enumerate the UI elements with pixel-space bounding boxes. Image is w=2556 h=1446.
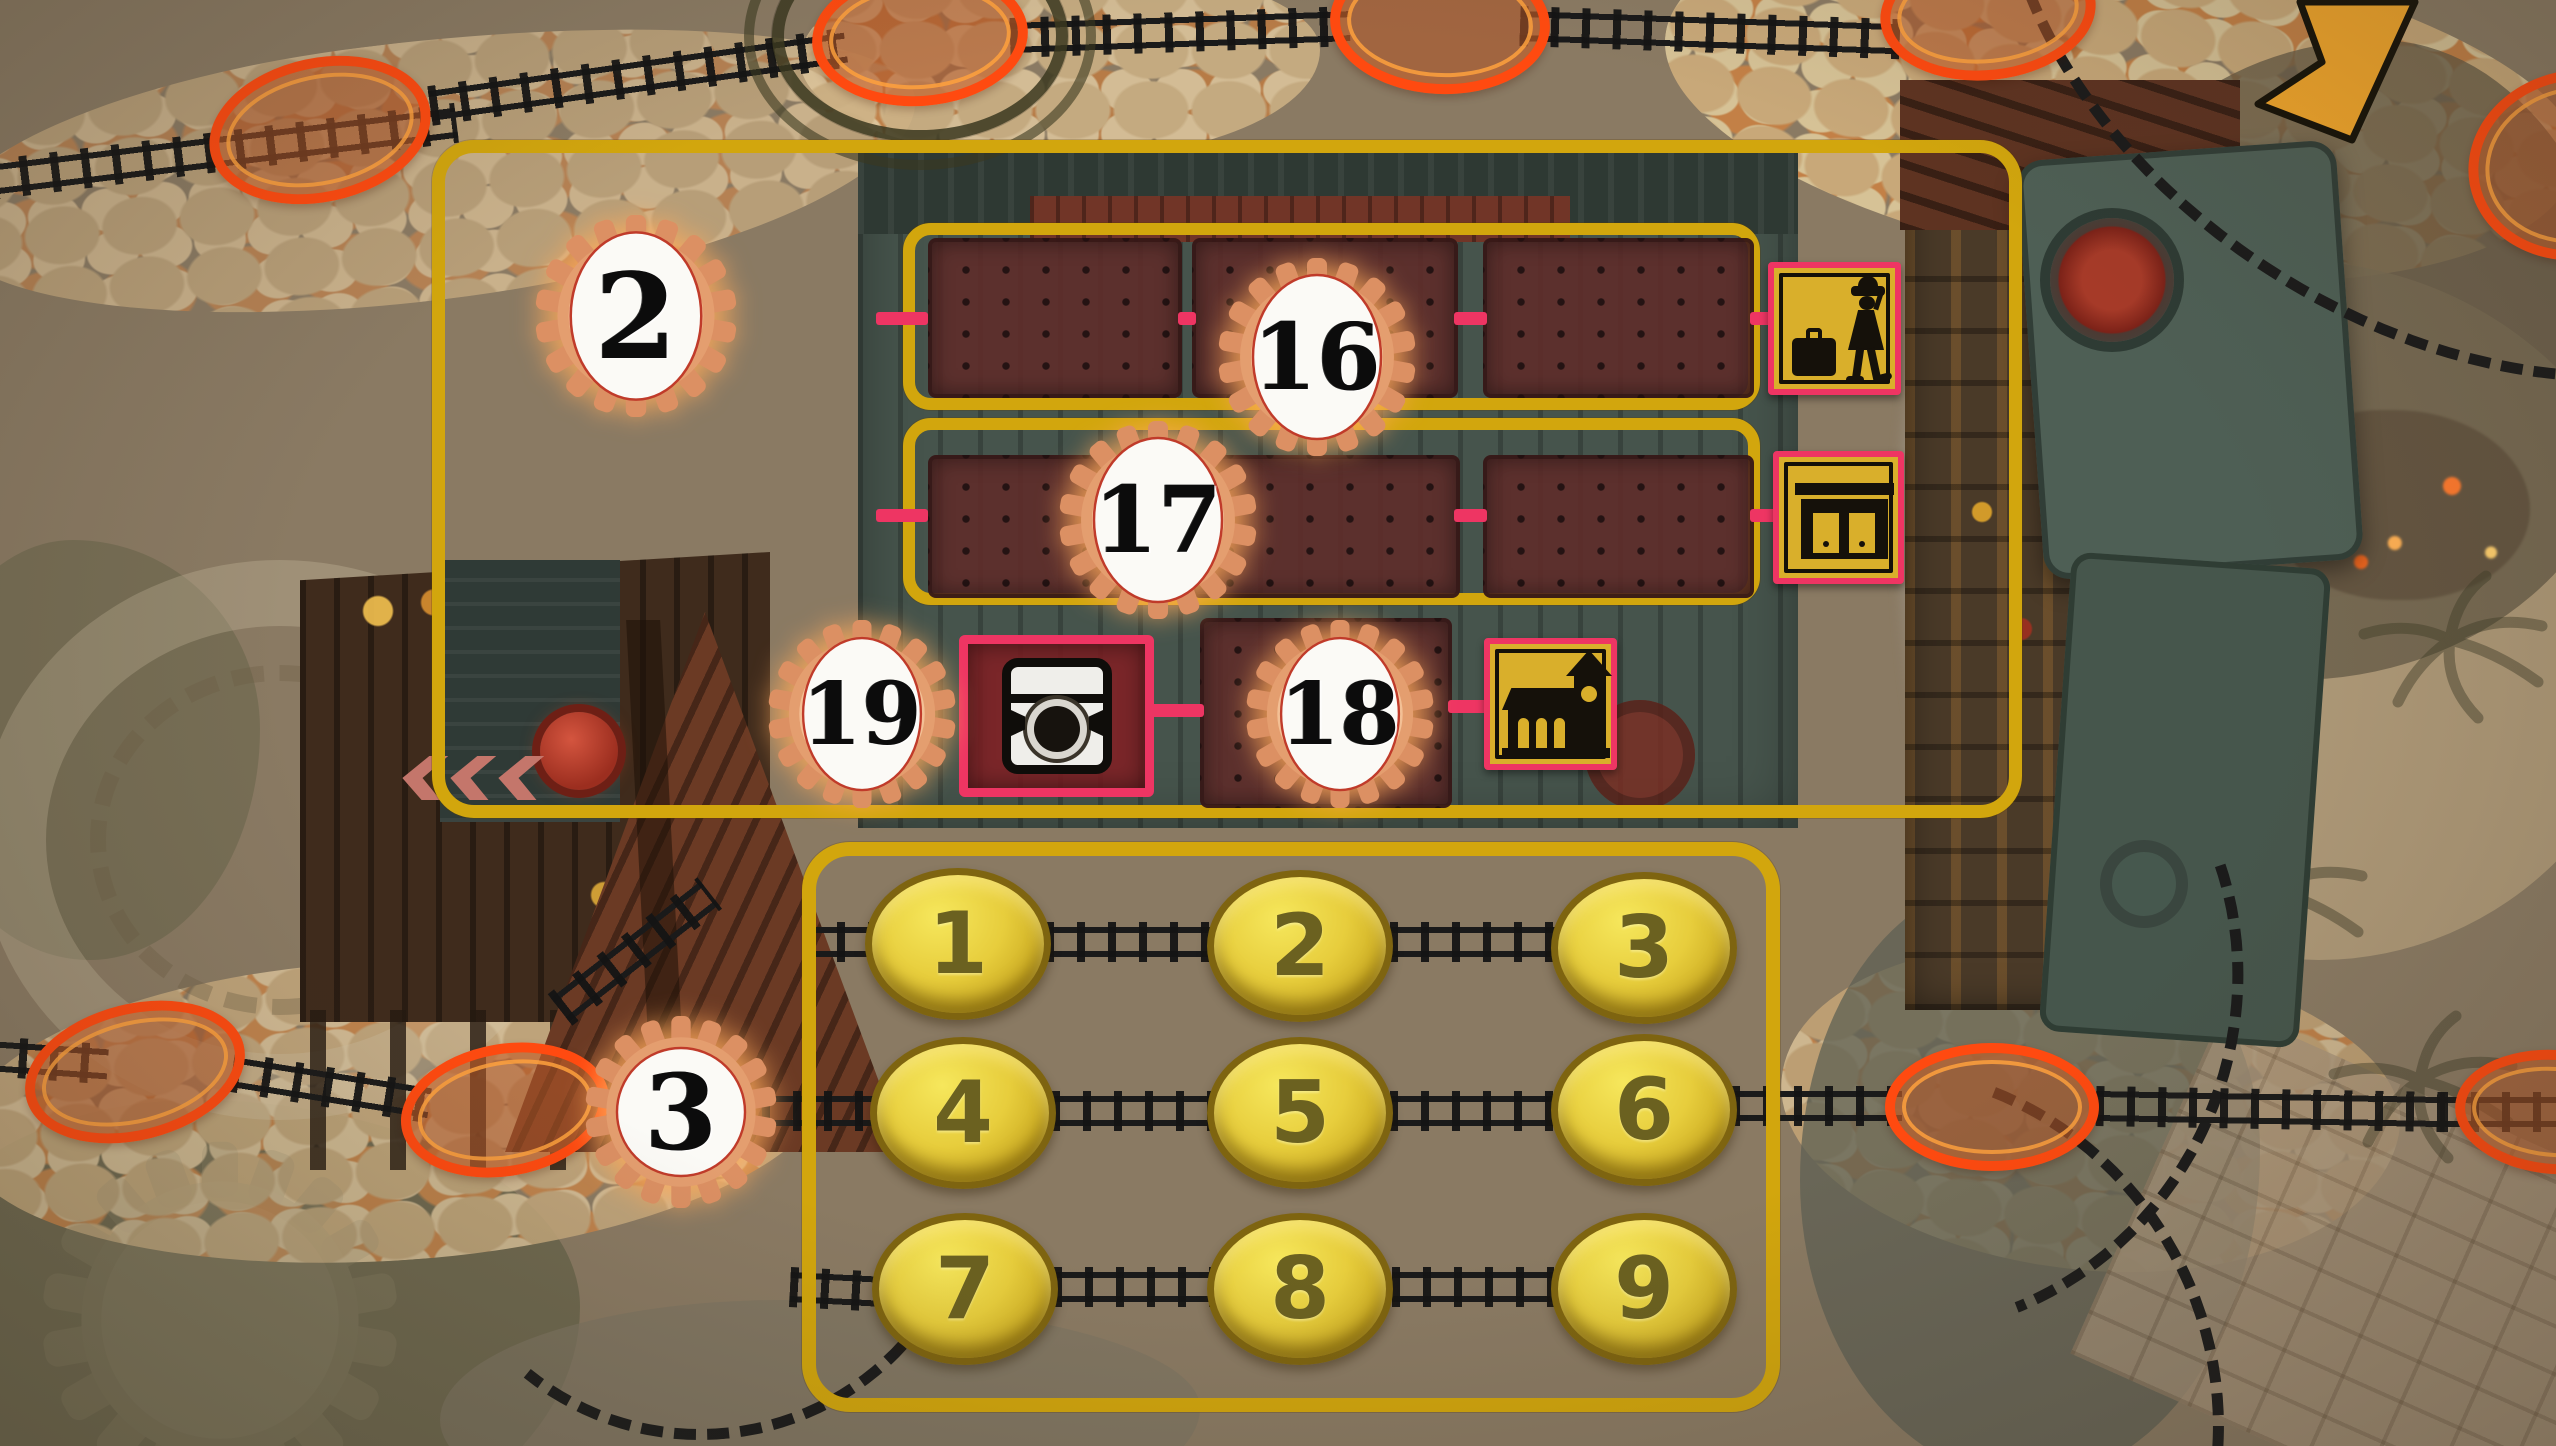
machine-glyph-wheel xyxy=(1034,706,1080,752)
traveler-shoe xyxy=(1846,376,1864,383)
shop-door-dot xyxy=(1823,541,1829,547)
church-tower-window xyxy=(1581,686,1597,702)
suitcase-handle xyxy=(1806,328,1822,338)
machine-red-vent xyxy=(2050,218,2174,342)
station-node-9[interactable]: 9 xyxy=(1551,1213,1737,1365)
connector xyxy=(1178,312,1196,325)
station-node-1[interactable]: 1 xyxy=(865,868,1051,1020)
machine-glyph-topband xyxy=(1011,694,1103,703)
gear-badge-2[interactable]: 2 xyxy=(534,214,738,418)
awning-glyph xyxy=(1795,483,1894,495)
church-hall-roof xyxy=(1502,688,1580,710)
church-arch xyxy=(1554,718,1565,748)
machine-icon[interactable] xyxy=(959,635,1154,797)
cargo-slot-panel[interactable] xyxy=(1483,455,1754,598)
suitcase-glyph xyxy=(1792,338,1836,376)
shop-door xyxy=(1849,513,1875,553)
station-node-8[interactable]: 8 xyxy=(1207,1213,1393,1365)
track-br xyxy=(2096,1086,2447,1132)
station-node-2[interactable]: 2 xyxy=(1207,870,1393,1022)
empty-node[interactable] xyxy=(1885,1043,2099,1171)
church-icon[interactable] xyxy=(1484,638,1617,770)
connector xyxy=(1448,700,1488,713)
gear-badge-18[interactable]: 18 xyxy=(1245,619,1435,809)
connector xyxy=(1454,312,1487,325)
gear-badge-3[interactable]: 3 xyxy=(584,1015,778,1209)
station-node-3[interactable]: 3 xyxy=(1551,872,1737,1024)
cargo-slot-panel[interactable] xyxy=(928,238,1182,398)
storefront-icon[interactable] xyxy=(1773,451,1904,584)
cargo-slot-panel[interactable] xyxy=(1483,238,1754,398)
shop-door xyxy=(1813,513,1839,553)
station-node-4[interactable]: 4 xyxy=(870,1037,1056,1189)
gear-badge-19[interactable]: 19 xyxy=(767,619,957,809)
traveler-icon[interactable] xyxy=(1768,262,1901,395)
connector xyxy=(876,312,928,325)
faded-gear-watermark xyxy=(40,1140,400,1446)
map-arrow-icon xyxy=(2230,0,2460,150)
station-node-5[interactable]: 5 xyxy=(1207,1037,1393,1189)
empty-node[interactable] xyxy=(1326,0,1553,100)
shop-door-dot xyxy=(1859,541,1865,547)
connector xyxy=(876,509,928,522)
connector xyxy=(1454,509,1487,522)
connector xyxy=(1148,704,1204,717)
station-node-7[interactable]: 7 xyxy=(872,1213,1058,1365)
church-arch xyxy=(1518,718,1529,748)
church-arch xyxy=(1536,718,1547,748)
gear-badge-17[interactable]: 17 xyxy=(1058,420,1258,620)
game-board: 1 2 3 4 5 6 7 8 9 2 16 17 19 18 3 xyxy=(0,0,2556,1446)
station-node-6[interactable]: 6 xyxy=(1551,1034,1737,1186)
